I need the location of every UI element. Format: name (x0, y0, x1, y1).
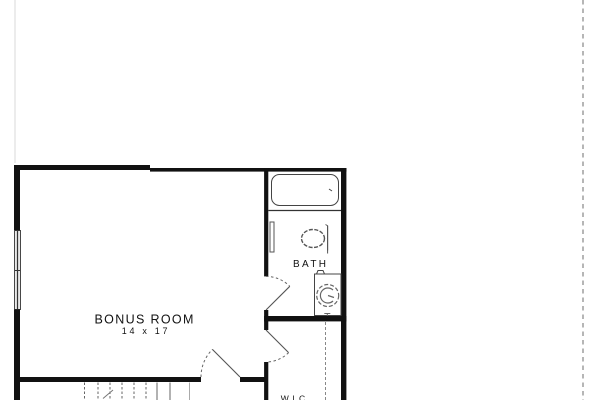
svg-text:BATH: BATH (293, 259, 328, 270)
svg-text:W.I.C.: W.I.C. (281, 393, 310, 400)
svg-text:14 x 17: 14 x 17 (122, 326, 170, 336)
svg-text:BONUS ROOM: BONUS ROOM (94, 313, 194, 327)
